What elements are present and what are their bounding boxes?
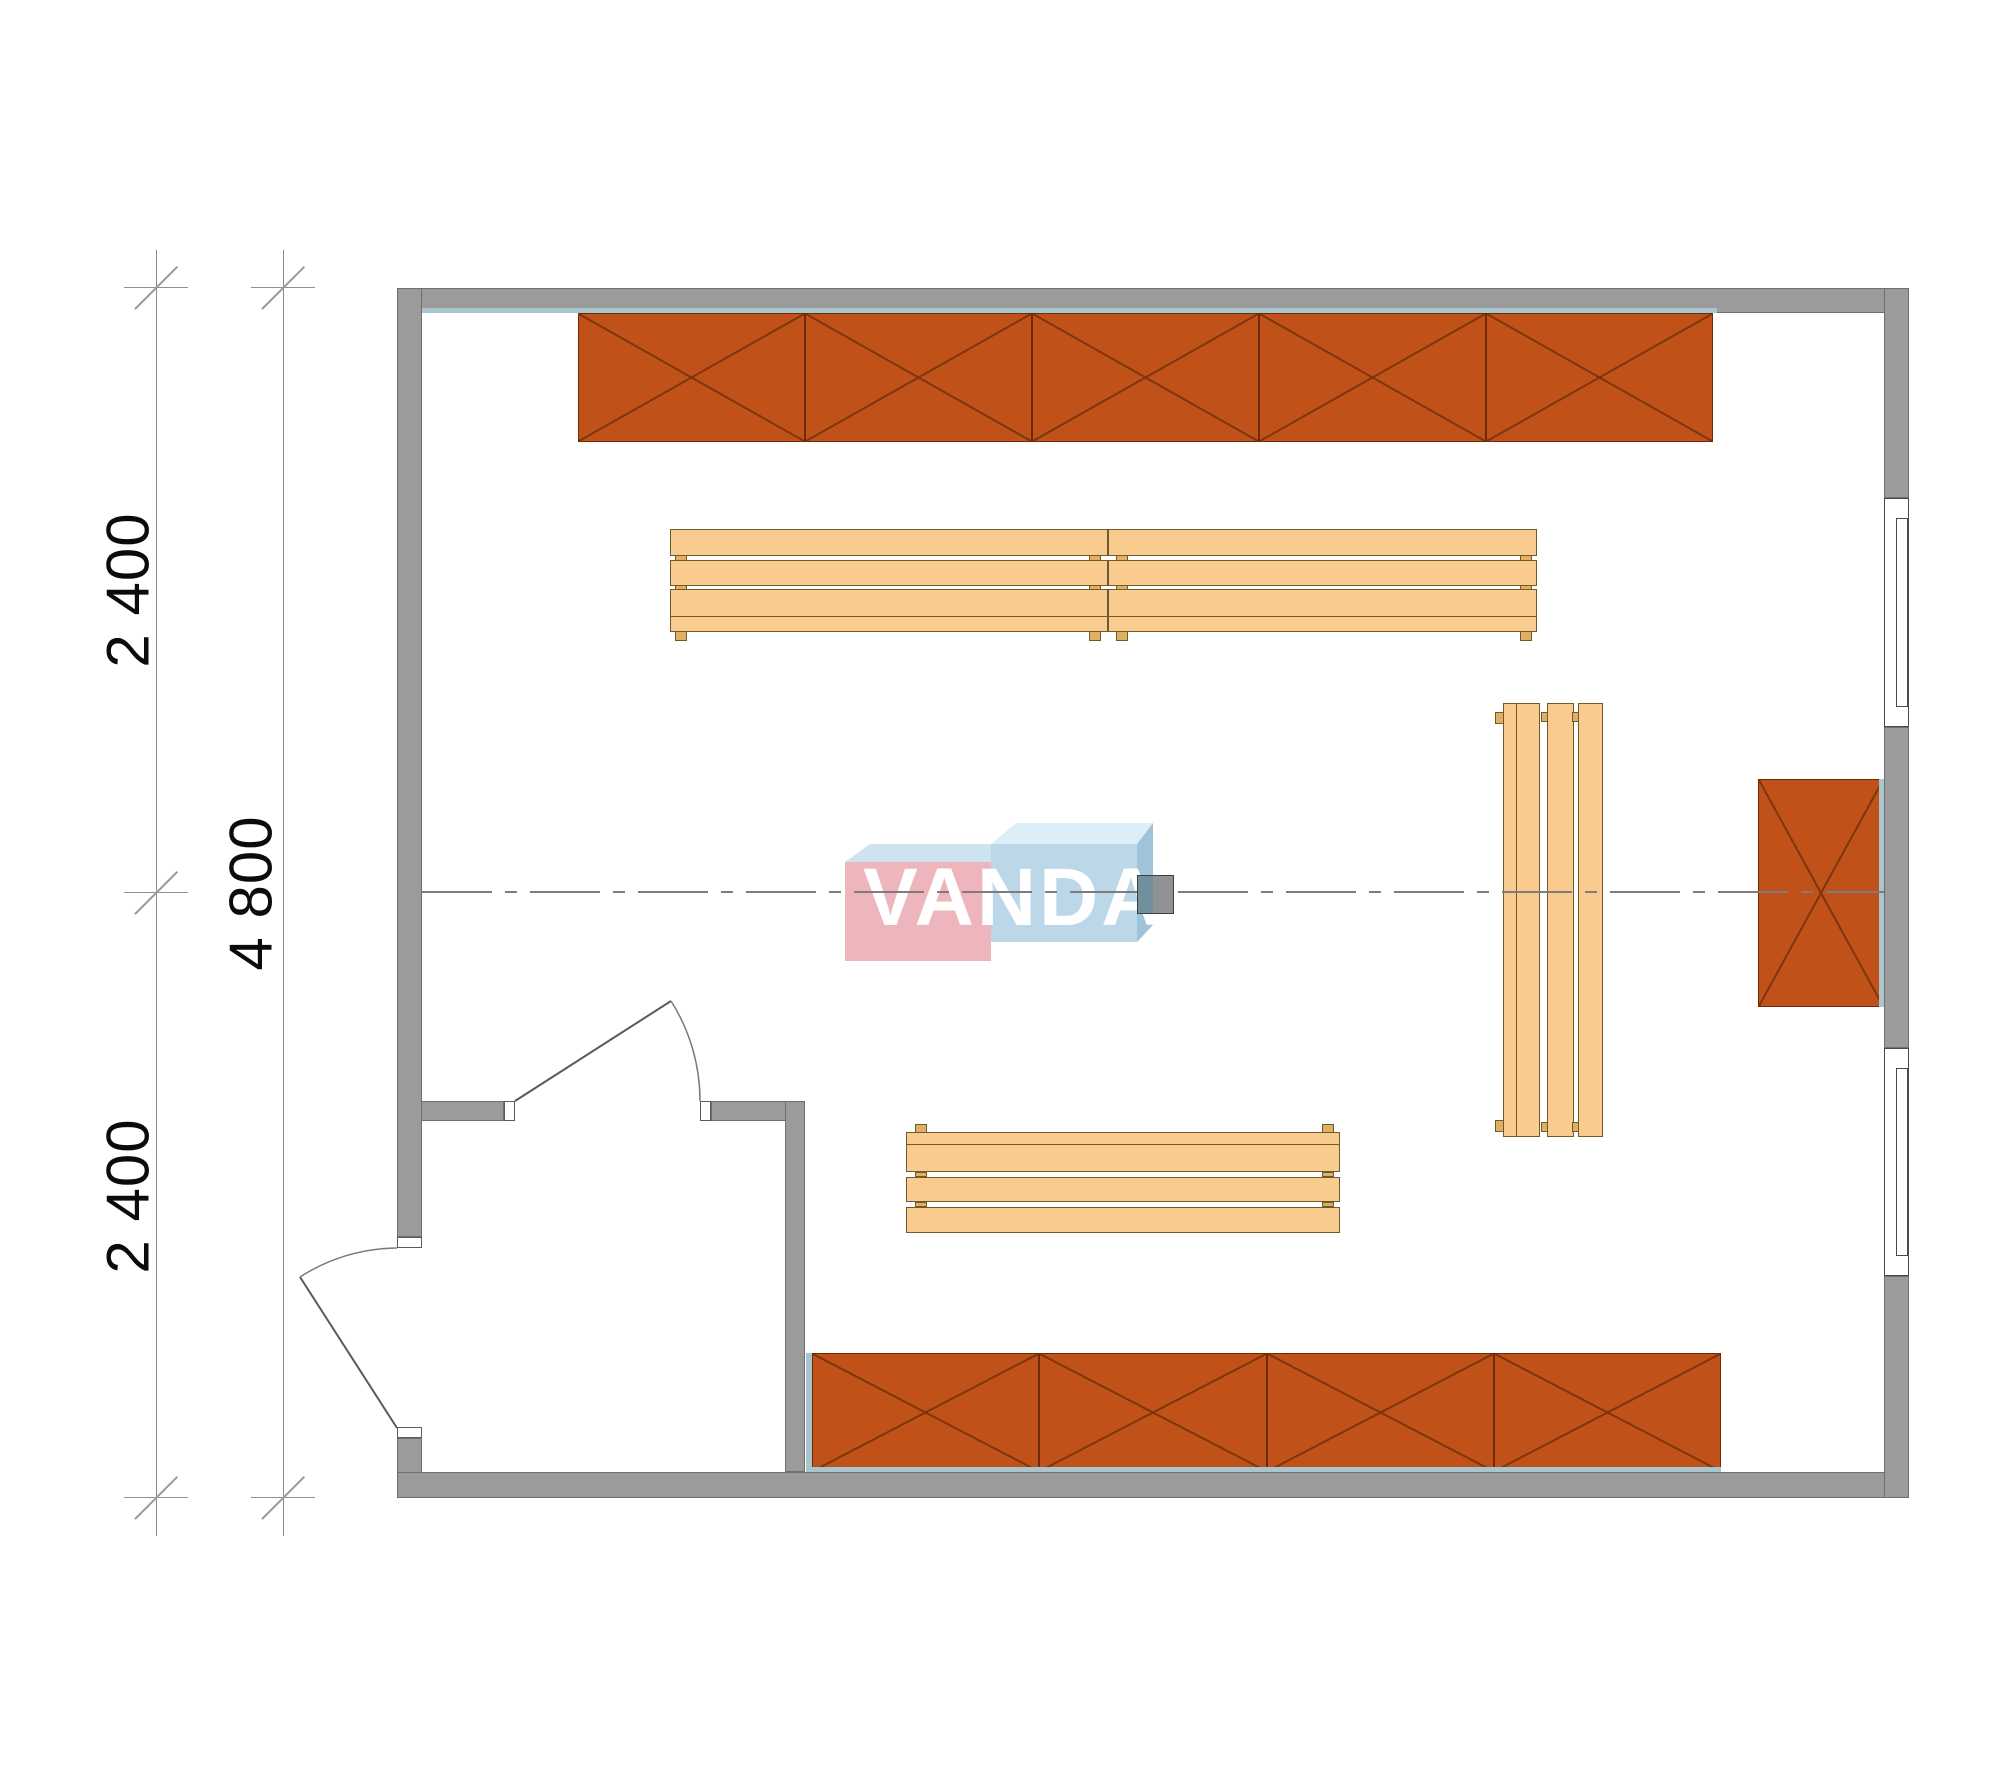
cabinet-module bbox=[1758, 779, 1884, 1007]
bench-slat bbox=[1108, 616, 1537, 632]
right-wall-cabinet bbox=[1758, 779, 1884, 1007]
window-lower bbox=[1884, 1048, 1909, 1276]
wall-bottom bbox=[397, 1472, 1909, 1498]
logo-text: VANDA bbox=[863, 855, 1129, 941]
bench-foot bbox=[1572, 1122, 1579, 1132]
bench-upper-left bbox=[670, 529, 1108, 642]
bench-foot bbox=[675, 585, 687, 590]
logo-bevel-blue bbox=[991, 823, 1153, 844]
bench-slat bbox=[670, 560, 1108, 586]
wall-vestibule-top-left bbox=[421, 1101, 504, 1121]
dimension-label-4800: 4 800 bbox=[217, 815, 286, 970]
bench-slat bbox=[1108, 560, 1537, 586]
window-glass bbox=[1896, 518, 1908, 707]
bench-foot bbox=[1572, 712, 1579, 722]
bench-slat bbox=[1578, 703, 1603, 1137]
bench-foot bbox=[1089, 631, 1101, 641]
bench-foot bbox=[1322, 1172, 1334, 1177]
bench-slat bbox=[670, 529, 1108, 556]
bench-foot bbox=[1541, 1122, 1548, 1132]
bench-foot bbox=[1322, 1202, 1334, 1207]
bench-upper-right bbox=[1108, 529, 1537, 642]
wall-left-upper bbox=[397, 288, 422, 1237]
bench-foot bbox=[1322, 1124, 1334, 1133]
top-cabinet-row bbox=[578, 313, 1713, 442]
bench-foot bbox=[1495, 1120, 1504, 1132]
cabinet-module bbox=[1486, 313, 1713, 442]
bench-vertical bbox=[1495, 703, 1603, 1137]
bench-slat bbox=[1516, 703, 1540, 1137]
wall-right-lower bbox=[1884, 1276, 1909, 1498]
door-jamb bbox=[397, 1237, 422, 1248]
bench-foot bbox=[1520, 631, 1532, 641]
cabinet-module bbox=[1267, 1353, 1494, 1472]
dimension-label-2400-upper: 2 400 bbox=[94, 512, 163, 667]
door-jamb bbox=[700, 1101, 711, 1121]
bench-foot bbox=[915, 1124, 927, 1133]
cabinet-module bbox=[1039, 1353, 1266, 1472]
cabinet-module bbox=[578, 313, 805, 442]
bottom-cabinet-row bbox=[812, 1353, 1721, 1472]
bench-foot bbox=[675, 555, 687, 561]
bench-slat bbox=[1108, 589, 1537, 617]
bench-lower bbox=[906, 1124, 1340, 1233]
bench-slat bbox=[906, 1177, 1340, 1202]
door-jamb bbox=[397, 1427, 422, 1438]
entry-door-arc bbox=[300, 1248, 397, 1277]
center-marker-square bbox=[1137, 875, 1174, 914]
wall-right-upper bbox=[1884, 288, 1909, 498]
interior-door-arc bbox=[671, 1001, 700, 1101]
bench-foot bbox=[1116, 631, 1128, 641]
bench-slat bbox=[906, 1144, 1340, 1172]
cabinet-module bbox=[805, 313, 1032, 442]
cabinet-back-strip-top bbox=[422, 308, 1717, 313]
cabinet-module bbox=[1259, 313, 1486, 442]
bench-slat bbox=[1547, 703, 1574, 1137]
window-glass bbox=[1896, 1068, 1908, 1256]
bench-foot bbox=[675, 631, 687, 641]
dimension-label-2400-lower: 2 400 bbox=[94, 1118, 163, 1273]
floor-plan-canvas: 2 400 4 800 2 400 bbox=[0, 0, 2000, 1786]
cabinet-module bbox=[812, 1353, 1039, 1472]
bench-foot bbox=[1116, 585, 1128, 590]
window-upper bbox=[1884, 498, 1909, 727]
bench-foot bbox=[1495, 712, 1504, 724]
bench-foot bbox=[915, 1172, 927, 1177]
cabinet-module bbox=[1494, 1353, 1721, 1472]
bench-slat bbox=[1503, 703, 1517, 1137]
bench-foot bbox=[1520, 585, 1532, 590]
wall-right-middle bbox=[1884, 727, 1909, 1048]
entry-door-leaf bbox=[300, 1277, 397, 1428]
bench-slat bbox=[906, 1207, 1340, 1233]
bench-foot bbox=[1541, 712, 1548, 722]
door-jamb bbox=[504, 1101, 515, 1121]
cabinet-back-strip-bottom-left bbox=[806, 1353, 812, 1472]
bench-foot bbox=[1520, 555, 1532, 561]
bench-slat bbox=[670, 589, 1108, 617]
cabinet-module bbox=[1032, 313, 1259, 442]
cabinet-back-strip-bottom bbox=[806, 1467, 1721, 1472]
wall-vestibule-right bbox=[785, 1101, 805, 1472]
bench-slat bbox=[1108, 529, 1537, 556]
bench-foot bbox=[1116, 555, 1128, 561]
bench-foot bbox=[1089, 585, 1101, 590]
interior-door-leaf bbox=[515, 1001, 671, 1101]
bench-foot bbox=[1089, 555, 1101, 561]
bench-foot bbox=[915, 1202, 927, 1207]
bench-slat bbox=[670, 616, 1108, 632]
cabinet-back-strip-right bbox=[1879, 779, 1884, 1007]
